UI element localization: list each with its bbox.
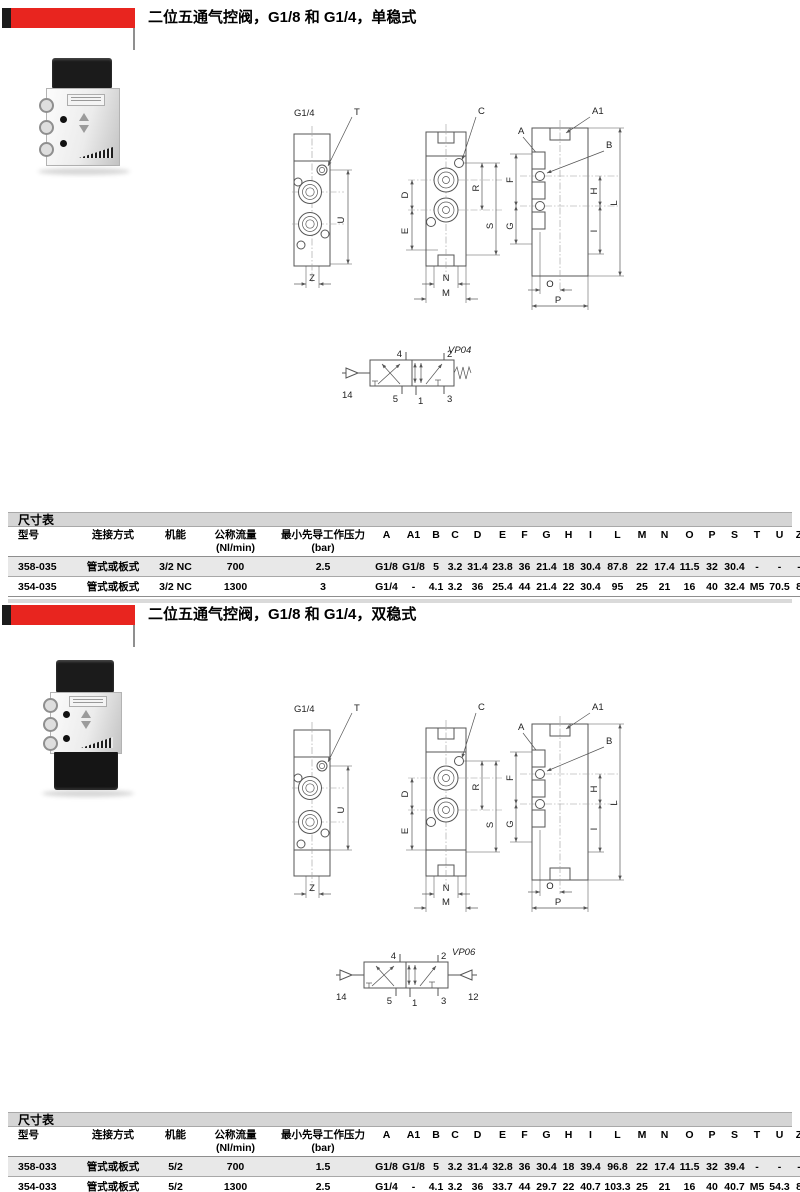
header-rule bbox=[133, 28, 135, 50]
model-cell: 358-033 bbox=[8, 1157, 73, 1177]
dim-label-o: O bbox=[546, 279, 553, 290]
header-rule bbox=[133, 625, 135, 647]
value-cell: 30.4 bbox=[578, 557, 603, 577]
value-cell: 3.2 bbox=[445, 1177, 465, 1192]
valve-pilot-cap-bottom bbox=[54, 752, 118, 790]
column-header: N bbox=[652, 527, 677, 557]
valve-body bbox=[46, 88, 120, 166]
value-cell: 40 bbox=[702, 1177, 722, 1192]
thread-label: G1/4 bbox=[294, 704, 315, 715]
value-cell: 21 bbox=[652, 577, 677, 597]
value-cell: 87.8 bbox=[603, 557, 632, 577]
value-cell: M5 bbox=[747, 577, 767, 597]
dimension-d-e: D E bbox=[400, 778, 438, 850]
column-header: A bbox=[373, 1127, 400, 1157]
value-cell: 4.1 bbox=[427, 577, 445, 597]
column-header: D bbox=[465, 1127, 490, 1157]
column-header: F bbox=[515, 1127, 534, 1157]
side-port bbox=[39, 120, 54, 135]
port-lines bbox=[402, 352, 444, 395]
header-accent-black bbox=[2, 8, 11, 28]
value-cell: - bbox=[767, 1157, 792, 1177]
value-cell: 25 bbox=[632, 1177, 652, 1192]
dim-label-i: I bbox=[589, 828, 600, 831]
dim-label-u: U bbox=[336, 216, 347, 223]
dim-label-n: N bbox=[443, 273, 450, 284]
value-cell: 30.4 bbox=[534, 1157, 559, 1177]
table-bottom-strip bbox=[8, 599, 792, 603]
value-cell: 管式或板式 bbox=[73, 557, 153, 577]
flow-paths bbox=[372, 363, 442, 386]
dim-label-t: T bbox=[354, 107, 360, 118]
value-cell: 23.8 bbox=[490, 557, 515, 577]
dim-label-g: G bbox=[505, 820, 516, 827]
value-cell: G1/4 bbox=[373, 577, 400, 597]
dim-label-m: M bbox=[442, 897, 450, 908]
column-header: 最小先导工作压力 (bar) bbox=[273, 527, 373, 557]
column-header: 型号 bbox=[8, 1127, 73, 1157]
pneumatic-symbol-vp06: VP06 4 2 5 1 3 14 bbox=[336, 946, 484, 1008]
dimension-z: Z bbox=[294, 266, 331, 288]
schematic-mark bbox=[79, 113, 89, 121]
valve-pilot-cap bbox=[52, 58, 112, 88]
port-5: 5 bbox=[387, 996, 392, 1007]
column-header: B bbox=[427, 1127, 445, 1157]
value-cell: 18 bbox=[559, 1157, 578, 1177]
flow-paths bbox=[366, 965, 436, 988]
port-1: 1 bbox=[418, 396, 423, 407]
column-header: P bbox=[702, 527, 722, 557]
pilot-left bbox=[342, 368, 370, 378]
dimension-z: Z bbox=[294, 876, 331, 898]
column-header: E bbox=[490, 1127, 515, 1157]
table-row: 354-033管式或板式5/213002.5G1/4-4.13.23633.74… bbox=[8, 1177, 800, 1192]
column-header: 机能 bbox=[153, 527, 198, 557]
column-header: B bbox=[427, 527, 445, 557]
value-cell: 11.5 bbox=[677, 1157, 702, 1177]
table-row: 358-033管式或板式5/27001.5G1/8G1/853.231.432.… bbox=[8, 1157, 800, 1177]
dim-label-l: L bbox=[609, 800, 620, 805]
model-cell: 354-035 bbox=[8, 577, 73, 597]
value-cell: 5/2 bbox=[153, 1157, 198, 1177]
port-3: 3 bbox=[447, 394, 452, 405]
value-cell: 31.4 bbox=[465, 1157, 490, 1177]
dim-label-b: B bbox=[606, 140, 612, 151]
header-accent-black bbox=[2, 605, 11, 625]
photo-shadow bbox=[38, 168, 130, 175]
dimension-u: U bbox=[330, 170, 352, 264]
value-cell: - bbox=[792, 1157, 800, 1177]
pilot-left bbox=[336, 970, 364, 980]
dim-label-o: O bbox=[546, 881, 553, 892]
value-cell: 管式或板式 bbox=[73, 577, 153, 597]
dimension-r-s: R S bbox=[464, 761, 500, 852]
column-header: A1 bbox=[400, 527, 427, 557]
column-header: L bbox=[603, 527, 632, 557]
value-cell: 3.2 bbox=[445, 1157, 465, 1177]
value-cell: 1300 bbox=[198, 1177, 273, 1192]
value-cell: 36 bbox=[515, 557, 534, 577]
dim-label-f: F bbox=[505, 775, 516, 781]
value-cell: 5 bbox=[427, 557, 445, 577]
value-cell: 40.7 bbox=[578, 1177, 603, 1192]
column-header: 公称流量 (Nl/min) bbox=[198, 1127, 273, 1157]
port-2: 2 bbox=[441, 951, 446, 962]
dim-label-f: F bbox=[505, 177, 516, 183]
column-header: S bbox=[722, 1127, 747, 1157]
dim-label-e: E bbox=[400, 228, 411, 234]
value-cell: 22 bbox=[559, 1177, 578, 1192]
value-cell: - bbox=[747, 1157, 767, 1177]
dim-label-r: R bbox=[471, 184, 482, 191]
valve-label bbox=[67, 94, 105, 106]
header-accent-red bbox=[11, 8, 135, 28]
dimension-r-s: R S bbox=[464, 163, 500, 255]
value-cell: 32.8 bbox=[490, 1157, 515, 1177]
value-cell: G1/8 bbox=[373, 1157, 400, 1177]
value-cell: 25 bbox=[632, 577, 652, 597]
port-12: 12 bbox=[468, 992, 479, 1003]
value-cell: 103.3 bbox=[603, 1177, 632, 1192]
column-header: O bbox=[677, 1127, 702, 1157]
value-cell: 2.5 bbox=[273, 1177, 373, 1192]
table-header-row: 型号连接方式机能公称流量 (Nl/min)最小先导工作压力 (bar)AA1BC… bbox=[8, 527, 800, 557]
ports bbox=[427, 159, 464, 227]
value-cell: G1/8 bbox=[373, 557, 400, 577]
dim-label-m: M bbox=[442, 288, 450, 299]
port-5: 5 bbox=[393, 394, 398, 405]
port-hole bbox=[60, 116, 67, 123]
dim-label-u: U bbox=[336, 806, 347, 813]
value-cell: 4.1 bbox=[427, 1177, 445, 1192]
product-photo-monostable bbox=[30, 52, 136, 178]
column-header: T bbox=[747, 1127, 767, 1157]
dim-label-z: Z bbox=[309, 273, 315, 284]
value-cell: 25.4 bbox=[490, 577, 515, 597]
model-cell: 354-033 bbox=[8, 1177, 73, 1192]
value-cell: 44 bbox=[515, 1177, 534, 1192]
value-cell: G1/4 bbox=[373, 1177, 400, 1192]
column-header: C bbox=[445, 527, 465, 557]
value-cell: 39.4 bbox=[722, 1157, 747, 1177]
port-hole bbox=[63, 711, 70, 718]
value-cell: 31.4 bbox=[465, 557, 490, 577]
dimension-d-e: D E bbox=[400, 180, 438, 250]
ports bbox=[427, 757, 464, 827]
column-header: P bbox=[702, 1127, 722, 1157]
dim-label-a1: A1 bbox=[592, 702, 604, 713]
port-4: 4 bbox=[397, 349, 402, 360]
side-port bbox=[39, 98, 54, 113]
value-cell: 36 bbox=[465, 1177, 490, 1192]
value-cell: 3.2 bbox=[445, 557, 465, 577]
ports bbox=[294, 165, 329, 249]
symbol-name: VP06 bbox=[452, 947, 476, 958]
dimension-o-p: O P bbox=[528, 830, 588, 912]
column-header: M bbox=[632, 527, 652, 557]
dim-label-t: T bbox=[354, 703, 360, 714]
column-header: G bbox=[534, 1127, 559, 1157]
dim-label-s: S bbox=[485, 822, 496, 828]
table-row: 354-035管式或板式3/2 NC13003G1/4-4.13.23625.4… bbox=[8, 577, 800, 597]
dim-label-a: A bbox=[518, 126, 525, 137]
port-14: 14 bbox=[342, 390, 353, 401]
value-cell: 管式或板式 bbox=[73, 1177, 153, 1192]
value-cell: 17.4 bbox=[652, 557, 677, 577]
schematic-mark bbox=[81, 721, 91, 729]
column-header: 最小先导工作压力 (bar) bbox=[273, 1127, 373, 1157]
valve-pilot-cap-top bbox=[56, 660, 114, 692]
value-cell: 95 bbox=[603, 577, 632, 597]
column-header: A bbox=[373, 527, 400, 557]
dimension-h-i-l: H I L bbox=[588, 724, 624, 880]
column-header: T bbox=[747, 527, 767, 557]
value-cell: 16 bbox=[677, 1177, 702, 1192]
dimension-o-p: O P bbox=[528, 232, 588, 310]
value-cell: 1.5 bbox=[273, 1157, 373, 1177]
valve-body bbox=[50, 692, 122, 754]
dimension-f-g: F G bbox=[505, 752, 532, 842]
column-header: I bbox=[578, 1127, 603, 1157]
dim-label-c: C bbox=[478, 702, 485, 713]
dim-label-h: H bbox=[589, 785, 600, 792]
dim-label-b: B bbox=[606, 736, 612, 747]
brand-logo-stripes bbox=[79, 147, 113, 158]
port-hole bbox=[60, 140, 67, 147]
side-port bbox=[43, 717, 58, 732]
dimension-n-m: N M bbox=[414, 876, 478, 912]
value-cell: 32.4 bbox=[722, 577, 747, 597]
value-cell: 40.7 bbox=[722, 1177, 747, 1192]
value-cell: 11.5 bbox=[677, 557, 702, 577]
value-cell: 3.2 bbox=[445, 577, 465, 597]
column-header: U bbox=[767, 1127, 792, 1157]
column-header: H bbox=[559, 1127, 578, 1157]
back-view-drawing-1: A1 A B F G H bbox=[500, 104, 635, 314]
value-cell: G1/8 bbox=[400, 557, 427, 577]
column-header: 连接方式 bbox=[73, 527, 153, 557]
dim-label-d: D bbox=[400, 191, 411, 198]
spring bbox=[454, 367, 471, 379]
value-cell: 32 bbox=[702, 1157, 722, 1177]
dim-label-a: A bbox=[518, 722, 525, 733]
column-header: D bbox=[465, 527, 490, 557]
section2-title: 二位五通气控阀，G1/8 和 G1/4，双稳式 bbox=[148, 605, 416, 625]
valve-boxes bbox=[370, 360, 454, 386]
column-header: O bbox=[677, 527, 702, 557]
front-view-drawing-2: G1/4 T U Z bbox=[286, 700, 400, 915]
catalog-page: 二位五通气控阀，G1/8 和 G1/4，单稳式 G1/4 T bbox=[0, 0, 800, 1192]
column-header: 连接方式 bbox=[73, 1127, 153, 1157]
value-cell: 17.4 bbox=[652, 1157, 677, 1177]
dim-label-r: R bbox=[471, 783, 482, 790]
column-header: C bbox=[445, 1127, 465, 1157]
front-view-drawing-1: G1/4 T U Z bbox=[286, 104, 400, 306]
brand-logo-stripes bbox=[81, 737, 113, 748]
value-cell: 21.4 bbox=[534, 577, 559, 597]
dimension-table-1: 型号连接方式机能公称流量 (Nl/min)最小先导工作压力 (bar)AA1BC… bbox=[8, 527, 800, 597]
value-cell: 32 bbox=[702, 557, 722, 577]
port-4: 4 bbox=[391, 951, 396, 962]
dim-label-z: Z bbox=[309, 883, 315, 894]
value-cell: 22 bbox=[632, 1157, 652, 1177]
table-header-row: 型号连接方式机能公称流量 (Nl/min)最小先导工作压力 (bar)AA1BC… bbox=[8, 1127, 800, 1157]
value-cell: 40 bbox=[702, 577, 722, 597]
value-cell: 1300 bbox=[198, 577, 273, 597]
value-cell: 29.7 bbox=[534, 1177, 559, 1192]
value-cell: 22 bbox=[632, 557, 652, 577]
pilot-right bbox=[448, 970, 477, 980]
dimension-table-block-2: 尺寸表 型号连接方式机能公称流量 (Nl/min)最小先导工作压力 (bar)A… bbox=[8, 1112, 792, 1192]
value-cell: 39.4 bbox=[578, 1157, 603, 1177]
value-cell: 54.3 bbox=[767, 1177, 792, 1192]
side-port bbox=[43, 736, 58, 751]
column-header: Z bbox=[792, 527, 800, 557]
column-header: E bbox=[490, 527, 515, 557]
column-header: G bbox=[534, 527, 559, 557]
dim-label-h: H bbox=[589, 187, 600, 194]
dim-label-p: P bbox=[555, 897, 561, 908]
dim-label-n: N bbox=[443, 883, 450, 894]
column-header: F bbox=[515, 527, 534, 557]
pneumatic-symbol-vp04: VP04 4 2 5 1 3 14 bbox=[342, 344, 477, 406]
port-hole bbox=[63, 735, 70, 742]
value-cell: 16 bbox=[677, 577, 702, 597]
port-3: 3 bbox=[441, 996, 446, 1007]
schematic-mark bbox=[79, 125, 89, 133]
value-cell: 3/2 NC bbox=[153, 557, 198, 577]
dim-label-c: C bbox=[478, 106, 485, 117]
dim-label-s: S bbox=[485, 223, 496, 229]
dim-label-e: E bbox=[400, 828, 411, 834]
value-cell: - bbox=[400, 1177, 427, 1192]
model-cell: 358-035 bbox=[8, 557, 73, 577]
dim-label-p: P bbox=[555, 295, 561, 306]
value-cell: 33.7 bbox=[490, 1177, 515, 1192]
value-cell: 22 bbox=[559, 577, 578, 597]
table-caption: 尺寸表 bbox=[8, 512, 792, 527]
back-view-drawing-2: A1 A B F G H bbox=[500, 700, 635, 918]
value-cell: 管式或板式 bbox=[73, 1157, 153, 1177]
column-header: N bbox=[652, 1127, 677, 1157]
header-accent-red bbox=[11, 605, 135, 625]
column-header: S bbox=[722, 527, 747, 557]
dimension-u: U bbox=[330, 766, 352, 850]
value-cell: 5/2 bbox=[153, 1177, 198, 1192]
value-cell: M5 bbox=[747, 1177, 767, 1192]
column-header: 型号 bbox=[8, 527, 73, 557]
side-view-drawing-2: C D E R S bbox=[398, 700, 516, 918]
dim-label-l: L bbox=[609, 200, 620, 205]
thread-label: G1/4 bbox=[294, 108, 315, 119]
dim-label-d: D bbox=[400, 790, 411, 797]
dim-label-a1: A1 bbox=[592, 106, 604, 117]
value-cell: 36 bbox=[515, 1157, 534, 1177]
photo-shadow bbox=[42, 790, 134, 797]
ports bbox=[294, 761, 329, 848]
schematic-mark bbox=[81, 710, 91, 718]
column-header: 机能 bbox=[153, 1127, 198, 1157]
value-cell: 700 bbox=[198, 557, 273, 577]
dimension-table-2: 型号连接方式机能公称流量 (Nl/min)最小先导工作压力 (bar)AA1BC… bbox=[8, 1127, 800, 1192]
port-lines bbox=[396, 954, 438, 997]
column-header: I bbox=[578, 527, 603, 557]
value-cell: 8 bbox=[792, 1177, 800, 1192]
value-cell: - bbox=[767, 557, 792, 577]
product-photo-bistable bbox=[36, 656, 138, 798]
valve-label bbox=[69, 696, 107, 707]
value-cell: - bbox=[747, 557, 767, 577]
value-cell: 18 bbox=[559, 557, 578, 577]
value-cell: - bbox=[792, 557, 800, 577]
dimension-f-g: F G bbox=[505, 154, 532, 244]
value-cell: 30.4 bbox=[722, 557, 747, 577]
value-cell: 8 bbox=[792, 577, 800, 597]
side-view-drawing-1: C D E R S bbox=[398, 104, 516, 310]
value-cell: 3/2 NC bbox=[153, 577, 198, 597]
section2-header-bar bbox=[2, 605, 135, 625]
column-header: 公称流量 (Nl/min) bbox=[198, 527, 273, 557]
column-header: M bbox=[632, 1127, 652, 1157]
value-cell: 21 bbox=[652, 1177, 677, 1192]
value-cell: 2.5 bbox=[273, 557, 373, 577]
section1-title: 二位五通气控阀，G1/8 和 G1/4，单稳式 bbox=[148, 8, 416, 28]
value-cell: 5 bbox=[427, 1157, 445, 1177]
value-cell: 96.8 bbox=[603, 1157, 632, 1177]
column-header: L bbox=[603, 1127, 632, 1157]
section1-header-bar bbox=[2, 8, 135, 28]
port-2: 2 bbox=[447, 349, 452, 360]
valve-boxes bbox=[364, 962, 448, 988]
value-cell: 70.5 bbox=[767, 577, 792, 597]
value-cell: 30.4 bbox=[578, 577, 603, 597]
value-cell: G1/8 bbox=[400, 1157, 427, 1177]
value-cell: 44 bbox=[515, 577, 534, 597]
value-cell: - bbox=[400, 577, 427, 597]
value-cell: 36 bbox=[465, 577, 490, 597]
column-header: H bbox=[559, 527, 578, 557]
dim-label-g: G bbox=[505, 222, 516, 229]
side-port bbox=[39, 142, 54, 157]
value-cell: 700 bbox=[198, 1157, 273, 1177]
table-row: 358-035管式或板式3/2 NC7002.5G1/8G1/853.231.4… bbox=[8, 557, 800, 577]
column-header: Z bbox=[792, 1127, 800, 1157]
value-cell: 3 bbox=[273, 577, 373, 597]
port-1: 1 bbox=[412, 998, 417, 1009]
table-caption: 尺寸表 bbox=[8, 1112, 792, 1127]
port-14: 14 bbox=[336, 992, 347, 1003]
side-port bbox=[43, 698, 58, 713]
column-header: A1 bbox=[400, 1127, 427, 1157]
dimension-table-block-1: 尺寸表 型号连接方式机能公称流量 (Nl/min)最小先导工作压力 (bar)A… bbox=[8, 512, 792, 603]
value-cell: 21.4 bbox=[534, 557, 559, 577]
dim-label-i: I bbox=[589, 230, 600, 233]
column-header: U bbox=[767, 527, 792, 557]
